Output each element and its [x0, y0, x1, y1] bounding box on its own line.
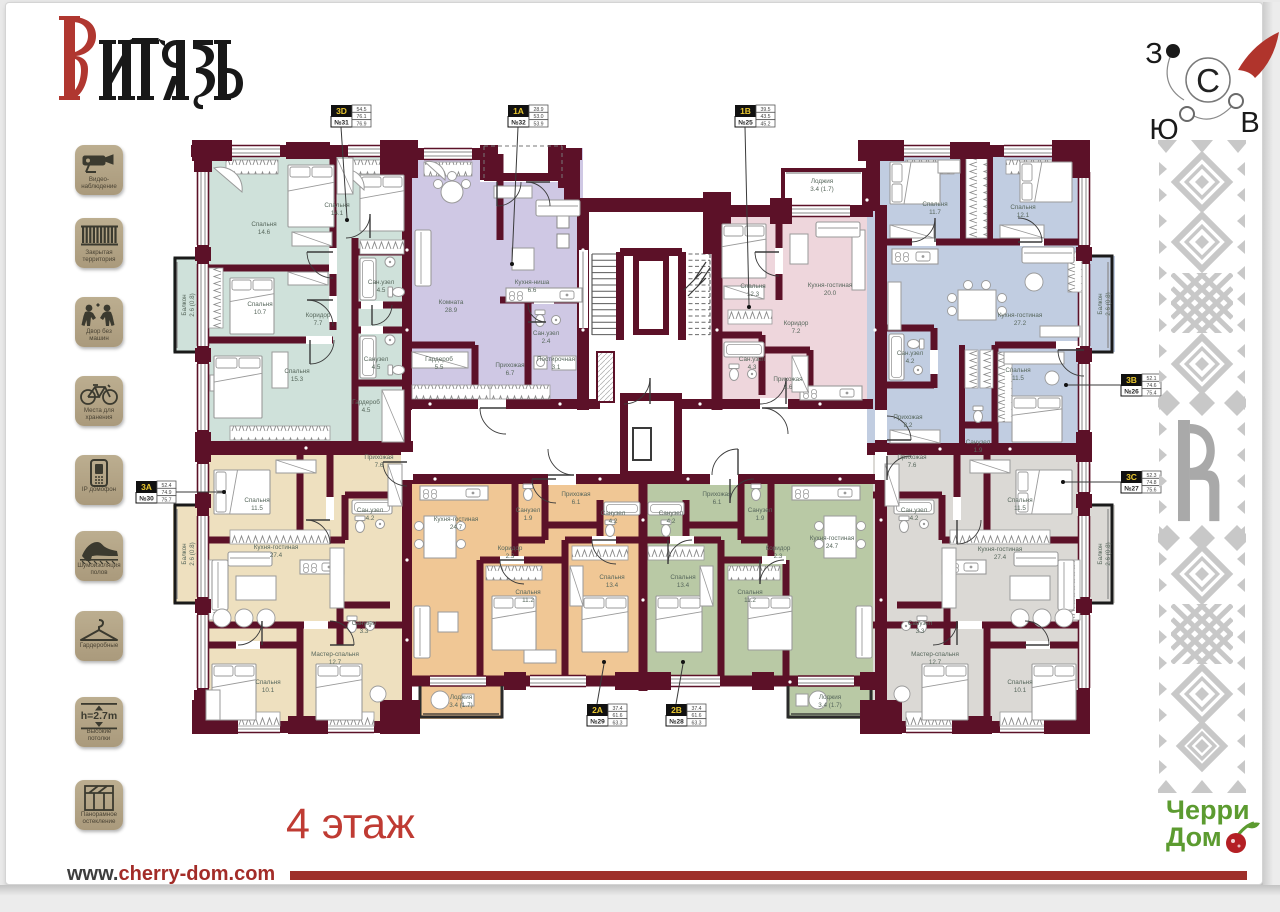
svg-text:52.1: 52.1 — [1146, 376, 1156, 382]
svg-text:Кухня-ниша: Кухня-ниша — [515, 279, 550, 286]
svg-text:Дом: Дом — [1166, 822, 1222, 852]
svg-text:12.7: 12.7 — [329, 659, 342, 666]
svg-text:З: З — [1145, 38, 1163, 70]
svg-text:2.6 (0.8): 2.6 (0.8) — [189, 293, 196, 316]
svg-text:Гардероб: Гардероб — [352, 398, 380, 406]
svg-text:10.7: 10.7 — [254, 309, 267, 316]
svg-text:4.3: 4.3 — [748, 364, 757, 371]
svg-text:4.5: 4.5 — [377, 287, 386, 294]
svg-text:10.1: 10.1 — [262, 687, 275, 694]
svg-text:11.2: 11.2 — [744, 597, 756, 604]
svg-text:Коридор: Коридор — [498, 545, 523, 552]
svg-text:Прихожая: Прихожая — [897, 454, 926, 461]
svg-text:53.0: 53.0 — [533, 114, 543, 120]
svg-text:37.4: 37.4 — [612, 706, 622, 712]
svg-text:Спальня: Спальня — [247, 301, 272, 308]
svg-text:1A: 1A — [513, 106, 524, 116]
svg-text:Балкон: Балкон — [1097, 543, 1104, 565]
svg-text:75.7: 75.7 — [161, 497, 171, 503]
svg-text:№30: №30 — [139, 496, 154, 503]
svg-text:6.6: 6.6 — [528, 287, 537, 294]
svg-text:45.2: 45.2 — [760, 121, 770, 127]
svg-text:15.3: 15.3 — [291, 376, 304, 383]
svg-text:Спальня: Спальня — [284, 368, 309, 375]
svg-text:Санузел: Санузел — [966, 439, 991, 446]
svg-text:24.7: 24.7 — [450, 524, 463, 531]
svg-text:2.3: 2.3 — [774, 553, 783, 560]
svg-text:6.1: 6.1 — [572, 499, 581, 506]
svg-text:Спальня: Спальня — [670, 574, 695, 581]
svg-text:Спальня: Спальня — [737, 589, 762, 596]
svg-text:11.7: 11.7 — [929, 209, 941, 216]
svg-text:Сан.узел: Сан.узел — [901, 507, 928, 514]
svg-text:Постирочная: Постирочная — [537, 356, 575, 363]
svg-text:24.7: 24.7 — [826, 543, 839, 550]
svg-text:Прихожая: Прихожая — [561, 491, 590, 498]
svg-text:Прихожая: Прихожая — [893, 414, 922, 421]
svg-text:11.5: 11.5 — [1014, 505, 1026, 512]
svg-text:Сан.узел: Сан.узел — [533, 330, 560, 337]
svg-text:1.9: 1.9 — [756, 515, 765, 522]
svg-text:4.2: 4.2 — [906, 358, 915, 365]
svg-text:76.9: 76.9 — [356, 121, 366, 127]
svg-text:Кухня-гостиная: Кухня-гостиная — [434, 516, 479, 523]
svg-text:Сан.узел: Сан.узел — [368, 279, 395, 286]
svg-text:Коридор: Коридор — [766, 545, 791, 552]
svg-text:8.2: 8.2 — [904, 422, 913, 429]
svg-text:11.5: 11.5 — [1012, 375, 1024, 382]
svg-text:№25: №25 — [738, 120, 753, 127]
svg-text:2.6 (0.8): 2.6 (0.8) — [189, 542, 196, 565]
svg-text:Прихожая: Прихожая — [364, 454, 393, 461]
svg-text:Коридор: Коридор — [784, 320, 809, 327]
svg-text:2A: 2A — [592, 705, 603, 715]
svg-text:Спальня: Спальня — [740, 283, 765, 290]
svg-text:Кухня-гостиная: Кухня-гостиная — [254, 544, 299, 551]
svg-text:27.2: 27.2 — [1014, 320, 1027, 327]
svg-text:3.4 (1.7): 3.4 (1.7) — [818, 702, 841, 709]
svg-text:4.2: 4.2 — [910, 515, 919, 522]
svg-text:1B: 1B — [740, 106, 751, 116]
svg-text:Сан.узел: Сан.узел — [897, 350, 924, 357]
svg-text:20.0: 20.0 — [824, 290, 837, 297]
svg-text:28.9: 28.9 — [533, 107, 543, 113]
svg-text:Санузел: Санузел — [748, 507, 773, 514]
svg-text:№27: №27 — [1124, 486, 1139, 493]
svg-text:61.6: 61.6 — [612, 713, 622, 719]
svg-text:Балкон: Балкон — [181, 543, 188, 565]
svg-text:Кухня-гостиная: Кухня-гостиная — [978, 546, 1023, 553]
svg-text:13.4: 13.4 — [677, 582, 690, 589]
svg-text:37.4: 37.4 — [691, 706, 701, 712]
svg-text:Санузел: Санузел — [908, 620, 933, 627]
svg-text:3B: 3B — [1126, 375, 1137, 385]
svg-text:Спальня: Спальня — [1005, 367, 1030, 374]
svg-text:52.3: 52.3 — [1146, 473, 1156, 479]
svg-text:75.4: 75.4 — [1146, 390, 1156, 396]
svg-text:14.1: 14.1 — [331, 210, 344, 217]
svg-text:52.4: 52.4 — [161, 483, 171, 489]
svg-text:28.9: 28.9 — [445, 307, 458, 314]
svg-text:4.5: 4.5 — [362, 407, 371, 414]
svg-text:Спальня: Спальня — [922, 201, 947, 208]
svg-text:27.4: 27.4 — [270, 552, 283, 559]
svg-text:54.5: 54.5 — [356, 107, 366, 113]
svg-text:Спальня: Спальня — [255, 679, 280, 686]
svg-text:75.6: 75.6 — [1146, 487, 1156, 493]
svg-text:Спальня: Спальня — [244, 497, 269, 504]
svg-text:3.3: 3.3 — [916, 628, 925, 635]
svg-text:2.6 (0.8): 2.6 (0.8) — [1105, 542, 1112, 565]
svg-text:7.6: 7.6 — [375, 462, 384, 469]
svg-text:1.9: 1.9 — [524, 515, 533, 522]
svg-text:Лоджия: Лоджия — [450, 694, 472, 701]
svg-text:В: В — [1240, 107, 1259, 139]
svg-text:h=2.7m: h=2.7m — [81, 710, 117, 722]
svg-text:12.7: 12.7 — [929, 659, 942, 666]
svg-text:Мастер-спальня: Мастер-спальня — [911, 651, 959, 658]
svg-text:Спальня: Спальня — [1007, 679, 1032, 686]
svg-text:Комната: Комната — [439, 299, 464, 306]
svg-text:3.6: 3.6 — [784, 384, 793, 391]
svg-text:4.2: 4.2 — [667, 518, 676, 525]
svg-text:4.5: 4.5 — [372, 364, 381, 371]
svg-text:Прихожая: Прихожая — [773, 376, 802, 383]
svg-text:2.6 (0.8): 2.6 (0.8) — [1105, 292, 1112, 315]
svg-text:3.1: 3.1 — [552, 364, 561, 371]
svg-text:Спальня: Спальня — [1010, 204, 1035, 211]
svg-text:Санузел: Санузел — [516, 507, 541, 514]
svg-text:76.1: 76.1 — [356, 114, 366, 120]
svg-text:5.5: 5.5 — [435, 364, 444, 371]
svg-text:Спальня: Спальня — [1007, 497, 1032, 504]
svg-text:Прихожая: Прихожая — [495, 362, 524, 369]
svg-text:27.4: 27.4 — [994, 554, 1007, 561]
svg-text:11.5: 11.5 — [251, 505, 263, 512]
svg-text:4.2: 4.2 — [366, 515, 375, 522]
svg-text:11.2: 11.2 — [522, 597, 534, 604]
svg-text:№28: №28 — [669, 719, 684, 726]
svg-text:63.3: 63.3 — [691, 720, 701, 726]
svg-text:6.7: 6.7 — [506, 370, 515, 377]
svg-text:43.5: 43.5 — [760, 114, 770, 120]
svg-text:63.3: 63.3 — [612, 720, 622, 726]
svg-text:Прихожая: Прихожая — [702, 491, 731, 498]
svg-text:6.1: 6.1 — [713, 499, 722, 506]
svg-text:Балкон: Балкон — [1097, 293, 1104, 315]
svg-text:14.6: 14.6 — [258, 229, 271, 236]
svg-text:3A: 3A — [141, 482, 152, 492]
svg-text:Лоджия: Лоджия — [819, 694, 841, 701]
svg-text:Балкон: Балкон — [181, 294, 188, 316]
svg-text:Сан.узел: Сан.узел — [739, 356, 766, 363]
svg-text:Спальня: Спальня — [251, 221, 276, 228]
svg-text:1.9: 1.9 — [974, 447, 983, 454]
svg-text:Кухня-гостиная: Кухня-гостиная — [808, 282, 853, 289]
svg-text:С: С — [1196, 62, 1220, 99]
svg-text:2.4: 2.4 — [542, 338, 551, 345]
svg-text:Санузел: Санузел — [364, 356, 389, 363]
svg-text:Спальня: Спальня — [599, 574, 624, 581]
svg-text:3.4 (1.7): 3.4 (1.7) — [810, 186, 833, 193]
svg-text:№31: №31 — [334, 120, 349, 127]
svg-text:12.1: 12.1 — [1017, 212, 1030, 219]
svg-text:13.4: 13.4 — [606, 582, 619, 589]
svg-text:Мастер-спальня: Мастер-спальня — [311, 651, 359, 658]
svg-text:7.7: 7.7 — [314, 320, 323, 327]
svg-text:№29: №29 — [590, 719, 605, 726]
svg-text:3.4 (1.7): 3.4 (1.7) — [449, 702, 472, 709]
svg-text:39.5: 39.5 — [760, 107, 770, 113]
svg-text:Коридор: Коридор — [306, 312, 331, 319]
svg-text:53.9: 53.9 — [533, 121, 543, 127]
svg-text:7.2: 7.2 — [792, 328, 801, 335]
svg-text:3.3: 3.3 — [360, 628, 369, 635]
svg-text:10.1: 10.1 — [1014, 687, 1027, 694]
svg-text:Гардероб: Гардероб — [425, 355, 453, 363]
svg-text:Санузел: Санузел — [601, 510, 626, 517]
svg-text:Кухня-гостиная: Кухня-гостиная — [998, 312, 1043, 319]
svg-text:Лоджия: Лоджия — [811, 178, 833, 185]
svg-text:Санузел: Санузел — [352, 620, 377, 627]
svg-text:№26: №26 — [1124, 389, 1139, 396]
svg-text:74.9: 74.9 — [161, 490, 171, 496]
svg-text:3C: 3C — [1126, 472, 1137, 482]
svg-text:7.6: 7.6 — [908, 462, 917, 469]
svg-text:Кухня-гостиная: Кухня-гостиная — [810, 535, 855, 542]
svg-text:3D: 3D — [336, 106, 347, 116]
svg-text:Санузел: Санузел — [659, 510, 684, 517]
svg-text:4.2: 4.2 — [609, 518, 618, 525]
svg-text:№32: №32 — [511, 120, 526, 127]
svg-text:74.8: 74.8 — [1146, 480, 1156, 486]
svg-text:Сан.узел: Сан.узел — [357, 507, 384, 514]
svg-text:2.3: 2.3 — [506, 553, 515, 560]
svg-text:2B: 2B — [671, 705, 682, 715]
svg-text:74.6: 74.6 — [1146, 383, 1156, 389]
svg-text:Спальня: Спальня — [515, 589, 540, 596]
svg-text:61.6: 61.6 — [691, 713, 701, 719]
